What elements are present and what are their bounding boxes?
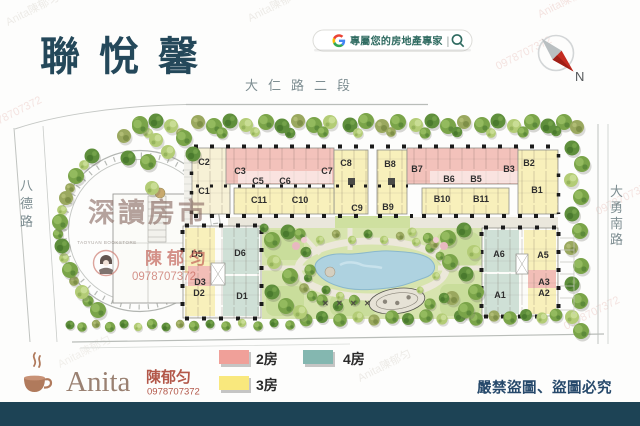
svg-text:D6: D6 xyxy=(234,248,246,258)
svg-text:路: 路 xyxy=(610,232,623,247)
svg-text:✕: ✕ xyxy=(350,299,357,308)
svg-text:C1: C1 xyxy=(198,186,210,196)
svg-text:路: 路 xyxy=(20,214,33,229)
svg-text:B6: B6 xyxy=(443,174,455,184)
svg-text:|: | xyxy=(447,36,450,48)
svg-text:B10: B10 xyxy=(434,194,451,204)
svg-text:C5: C5 xyxy=(252,176,264,186)
svg-text:Anita: Anita xyxy=(66,366,131,398)
svg-text:專屬您的房地產專家: 專屬您的房地產專家 xyxy=(350,35,443,48)
svg-text:聯悅馨: 聯悅馨 xyxy=(40,35,217,79)
svg-text:B2: B2 xyxy=(523,158,535,168)
svg-text:C7: C7 xyxy=(321,166,333,176)
svg-text:C10: C10 xyxy=(292,195,309,205)
svg-text:0978707372: 0978707372 xyxy=(147,387,200,398)
svg-text:大: 大 xyxy=(610,184,623,199)
svg-text:陳郁匀: 陳郁匀 xyxy=(146,368,191,386)
svg-text:B1: B1 xyxy=(531,185,543,195)
svg-text:C3: C3 xyxy=(234,166,246,176)
svg-text:D1: D1 xyxy=(236,291,248,301)
svg-text:A5: A5 xyxy=(537,250,549,260)
svg-text:南: 南 xyxy=(610,216,623,231)
svg-text:0978707372: 0978707372 xyxy=(132,271,196,283)
svg-text:TAOYUAN BOOKSTORE: TAOYUAN BOOKSTORE xyxy=(77,240,137,245)
svg-text:C9: C9 xyxy=(351,203,363,213)
svg-text:B9: B9 xyxy=(382,202,394,212)
svg-text:八: 八 xyxy=(20,178,33,193)
svg-text:德: 德 xyxy=(20,196,33,211)
svg-text:B11: B11 xyxy=(473,194,489,204)
svg-text:C6: C6 xyxy=(279,176,291,186)
svg-text:勇: 勇 xyxy=(610,200,623,215)
svg-text:N: N xyxy=(575,69,584,84)
svg-text:嚴禁盜圖、盜圖必究: 嚴禁盜圖、盜圖必究 xyxy=(477,379,612,397)
svg-text:B5: B5 xyxy=(470,174,482,184)
svg-text:B8: B8 xyxy=(384,159,396,169)
svg-text:大仁路二段: 大仁路二段 xyxy=(245,78,360,93)
svg-text:B7: B7 xyxy=(411,164,423,174)
svg-text:C11: C11 xyxy=(251,195,267,205)
svg-text:A6: A6 xyxy=(493,249,505,259)
svg-text:✕: ✕ xyxy=(336,299,343,308)
svg-text:深讀房市: 深讀房市 xyxy=(88,197,208,228)
svg-text:A2: A2 xyxy=(538,288,550,298)
svg-text:B3: B3 xyxy=(503,164,515,174)
svg-text:A3: A3 xyxy=(538,277,550,287)
svg-text:C8: C8 xyxy=(340,158,352,168)
svg-text:✕: ✕ xyxy=(364,299,371,308)
svg-text:4房: 4房 xyxy=(343,351,365,367)
svg-text:A1: A1 xyxy=(494,290,506,300)
svg-text:3房: 3房 xyxy=(256,377,278,393)
svg-text:2房: 2房 xyxy=(256,351,278,367)
svg-text:D2: D2 xyxy=(193,288,205,298)
svg-text:✕: ✕ xyxy=(322,299,329,308)
svg-text:陳郁匀: 陳郁匀 xyxy=(145,248,211,268)
